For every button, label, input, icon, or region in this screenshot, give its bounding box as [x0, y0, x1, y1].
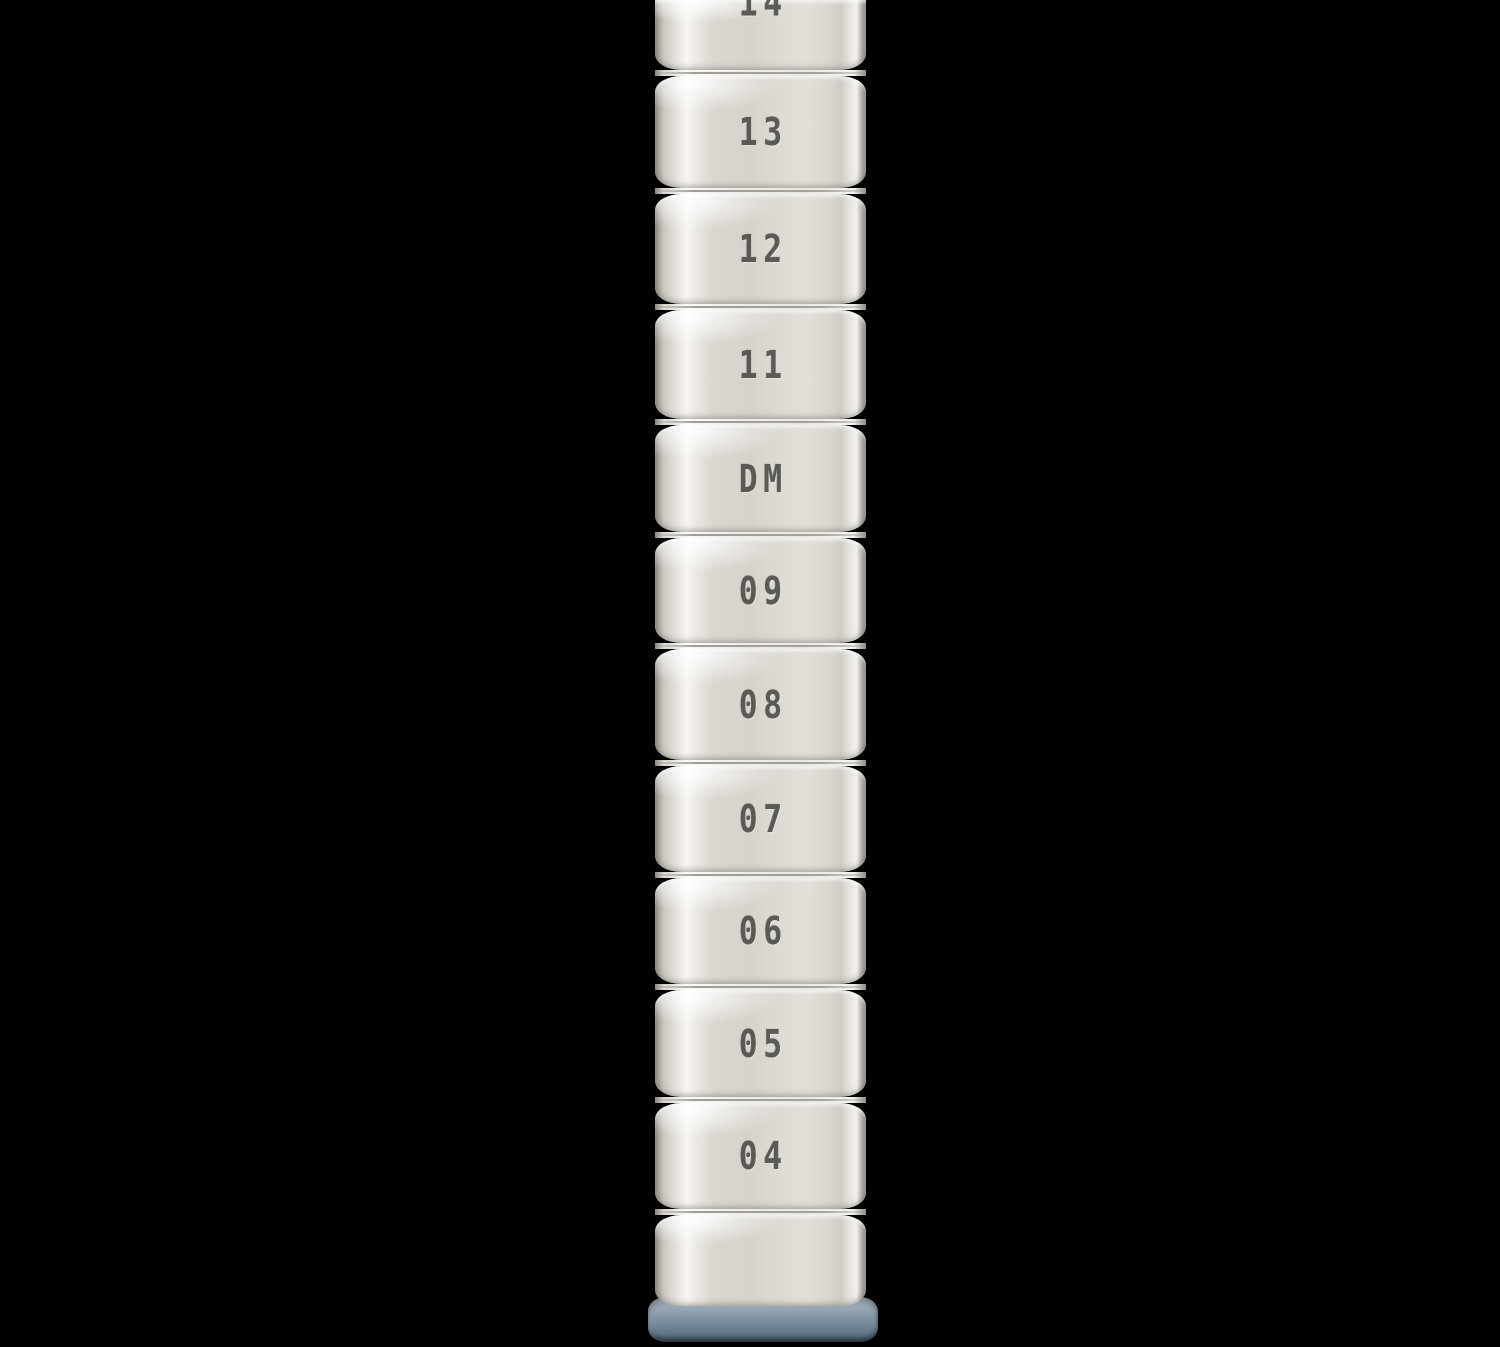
segment-label: 13: [674, 76, 847, 188]
segment-label: 09: [674, 538, 847, 643]
post-segment: 14: [655, 0, 866, 70]
post-segment: DM: [655, 425, 866, 532]
photo-scene: 14 13 12 11 DM 09 08 07: [0, 0, 1500, 1347]
segment-label: 14: [674, 0, 847, 70]
segment-label: 06: [674, 878, 847, 984]
post-segment: 08: [655, 649, 866, 760]
post-segment: 04: [655, 1103, 866, 1209]
segment-label: 11: [674, 310, 847, 419]
post-segment: [655, 1215, 866, 1306]
segment-label: [674, 1215, 847, 1306]
shelving-post: 14 13 12 11 DM 09 08 07: [655, 0, 866, 1306]
post-segment: 11: [655, 310, 866, 419]
post-segment: 13: [655, 76, 866, 188]
segment-label: 12: [674, 194, 847, 304]
post-segment: 09: [655, 538, 866, 643]
segment-label: DM: [674, 425, 847, 532]
post-segment: 12: [655, 194, 866, 304]
segment-label: 07: [674, 766, 847, 872]
segment-label: 05: [674, 990, 847, 1097]
segment-label: 08: [674, 649, 847, 760]
post-segment: 07: [655, 766, 866, 872]
post-segment: 05: [655, 990, 866, 1097]
segment-label: 04: [674, 1103, 847, 1209]
post-segment: 06: [655, 878, 866, 984]
